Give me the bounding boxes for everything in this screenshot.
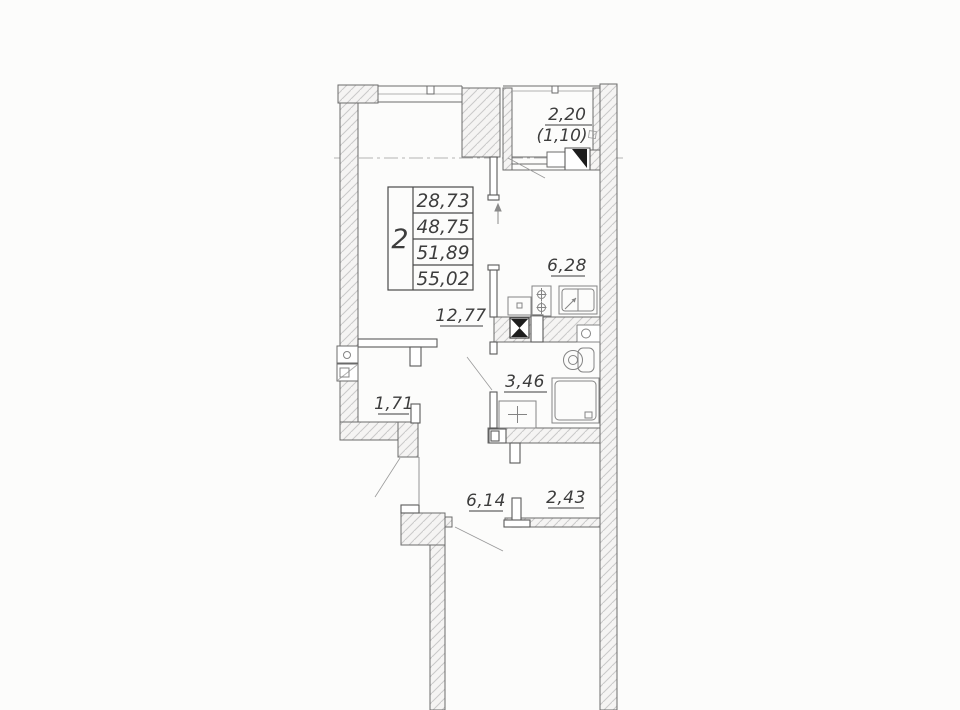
kitchen-duct-gap bbox=[531, 315, 543, 342]
living-area-label: 12,77 bbox=[435, 306, 486, 326]
wall-closet-bottom-band bbox=[340, 422, 398, 440]
wall-balcony-left bbox=[503, 88, 512, 170]
wall-building-left-lower bbox=[430, 545, 445, 710]
door-swing-bathroom bbox=[467, 357, 492, 390]
wall-closet-step bbox=[398, 422, 418, 457]
floor-plan-drawing: 2 28,73 48,75 51,89 55,02 2,20 (1,10) 6,… bbox=[0, 0, 960, 710]
washing-machine-icon bbox=[508, 297, 531, 315]
balcony-reduced-area-label: (1,10) bbox=[536, 126, 587, 146]
arrow-up-icon bbox=[495, 204, 501, 224]
area-value-4: 55,02 bbox=[417, 269, 470, 290]
hallway-area-label: 6,14 bbox=[466, 491, 506, 511]
wall-column-living-kitchen bbox=[462, 88, 500, 157]
service-box-icon bbox=[577, 325, 600, 342]
entry-niche-box bbox=[401, 505, 419, 513]
wardrobe-area-label: 2,43 bbox=[546, 488, 586, 508]
balcony-door-frame bbox=[547, 152, 565, 167]
riser-boxes bbox=[337, 346, 358, 381]
wall-left bbox=[340, 103, 358, 440]
partition-bath-left-lower bbox=[490, 392, 497, 428]
door-jamb-bottom bbox=[488, 265, 499, 270]
balcony-area-label: 2,20 bbox=[548, 105, 586, 125]
balcony-door-assembly bbox=[512, 148, 600, 170]
partition-living-kitchen-lower bbox=[490, 270, 497, 317]
door-swing-balcony bbox=[508, 158, 545, 178]
area-value-3: 51,89 bbox=[417, 243, 470, 264]
rooms-count: 2 bbox=[391, 224, 408, 255]
window-living-top bbox=[378, 86, 462, 102]
closet-area-label: 1,71 bbox=[374, 394, 414, 414]
kitchen-fixtures bbox=[508, 286, 597, 316]
wall-balcony-door-corner bbox=[590, 150, 600, 170]
window-balcony-top bbox=[503, 86, 600, 93]
vent-shaft-icon bbox=[510, 318, 529, 338]
door-jamb-top bbox=[488, 195, 499, 200]
partition-wardrobe-base bbox=[504, 520, 530, 527]
door-swing-entrance bbox=[455, 527, 503, 551]
wall-balcony-right bbox=[593, 88, 600, 152]
partition-wardrobe-stub-upper bbox=[510, 443, 520, 463]
wall-bottom-corner-block bbox=[401, 513, 445, 545]
partition-bath-left-upper bbox=[490, 342, 497, 354]
toilet-tank-icon bbox=[578, 348, 594, 372]
area-value-1: 28,73 bbox=[417, 191, 470, 212]
partition-living-kitchen-upper bbox=[490, 157, 497, 200]
partition-closet-stub-upper bbox=[410, 347, 421, 366]
riser-box-circle bbox=[337, 346, 358, 363]
kitchen-area-label: 6,28 bbox=[547, 256, 587, 276]
wall-top-left-corner bbox=[338, 85, 378, 103]
bath-door-frame-inner bbox=[491, 431, 499, 441]
area-value-2: 48,75 bbox=[417, 217, 470, 238]
toilet-bowl-icon bbox=[564, 351, 583, 370]
partition-closet-top bbox=[358, 339, 437, 347]
door-swing-hall-left bbox=[375, 458, 400, 497]
area-table: 2 28,73 48,75 51,89 55,02 bbox=[388, 187, 473, 290]
floor-plan-page: 2 28,73 48,75 51,89 55,02 2,20 (1,10) 6,… bbox=[0, 0, 960, 710]
wall-right bbox=[600, 84, 617, 710]
bathroom-area-label: 3,46 bbox=[505, 372, 545, 392]
